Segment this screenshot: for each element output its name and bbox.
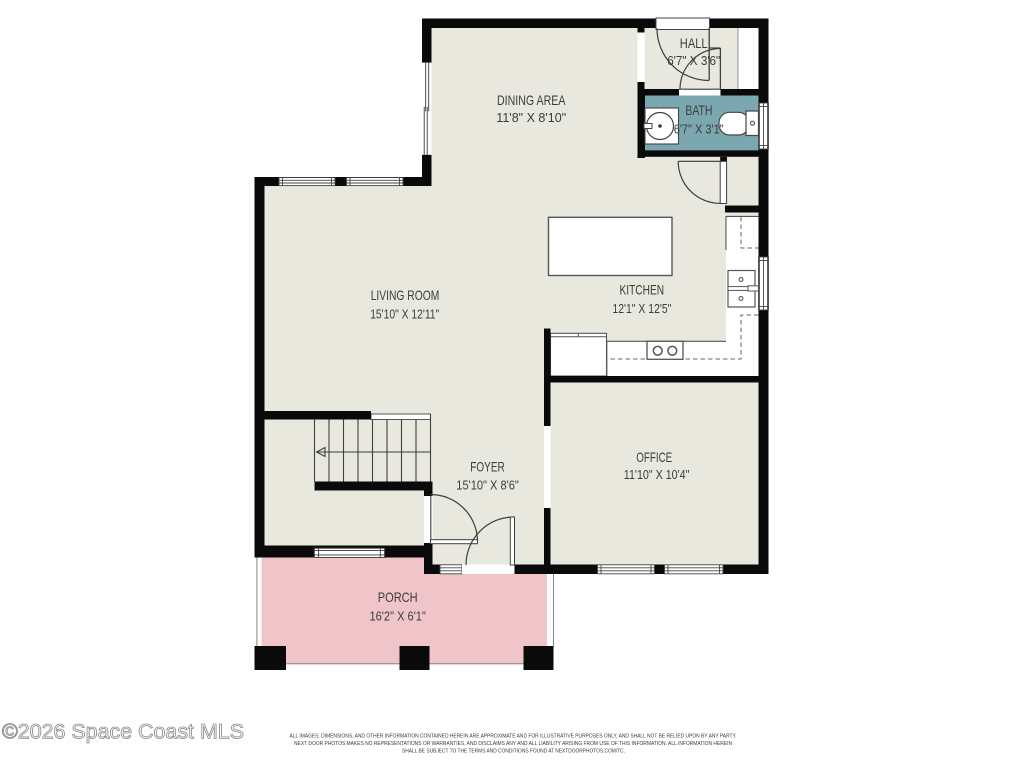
svg-text:FOYER: FOYER: [470, 459, 504, 475]
svg-text:11'10" X 10'4": 11'10" X 10'4": [624, 468, 690, 482]
svg-text:12'1" X 12'5": 12'1" X 12'5": [612, 302, 671, 316]
svg-text:SHALL BE SUBJECT TO THE TERMS: SHALL BE SUBJECT TO THE TERMS AND CONDIT…: [402, 748, 625, 754]
svg-text:11'8" X 8'10": 11'8" X 8'10": [496, 111, 566, 125]
svg-text:PORCH: PORCH: [378, 589, 418, 605]
svg-text:6'7" X 3'6": 6'7" X 3'6": [667, 54, 720, 68]
svg-text:16'2" X 6'1": 16'2" X 6'1": [370, 610, 426, 624]
svg-text:6'7" X 3'1": 6'7" X 3'1": [674, 122, 724, 136]
svg-text:DINING AREA: DINING AREA: [497, 92, 566, 108]
svg-text:BATH: BATH: [685, 102, 712, 118]
svg-text:15'10" X 8'6": 15'10" X 8'6": [456, 479, 519, 493]
svg-text:NEXT DOOR PHOTOS MAKES NO REPR: NEXT DOOR PHOTOS MAKES NO REPRESENTATION…: [294, 741, 732, 747]
svg-text:©2026 Space Coast MLS: ©2026 Space Coast MLS: [2, 721, 244, 744]
svg-text:LIVING ROOM: LIVING ROOM: [371, 287, 440, 303]
svg-text:15'10" X 12'11": 15'10" X 12'11": [370, 308, 439, 322]
svg-text:OFFICE: OFFICE: [636, 449, 672, 465]
svg-text:HALL: HALL: [680, 35, 708, 51]
svg-text:KITCHEN: KITCHEN: [620, 282, 665, 298]
svg-text:ALL IMAGES, DIMENSIONS, AND OT: ALL IMAGES, DIMENSIONS, AND OTHER INFORM…: [290, 734, 737, 740]
